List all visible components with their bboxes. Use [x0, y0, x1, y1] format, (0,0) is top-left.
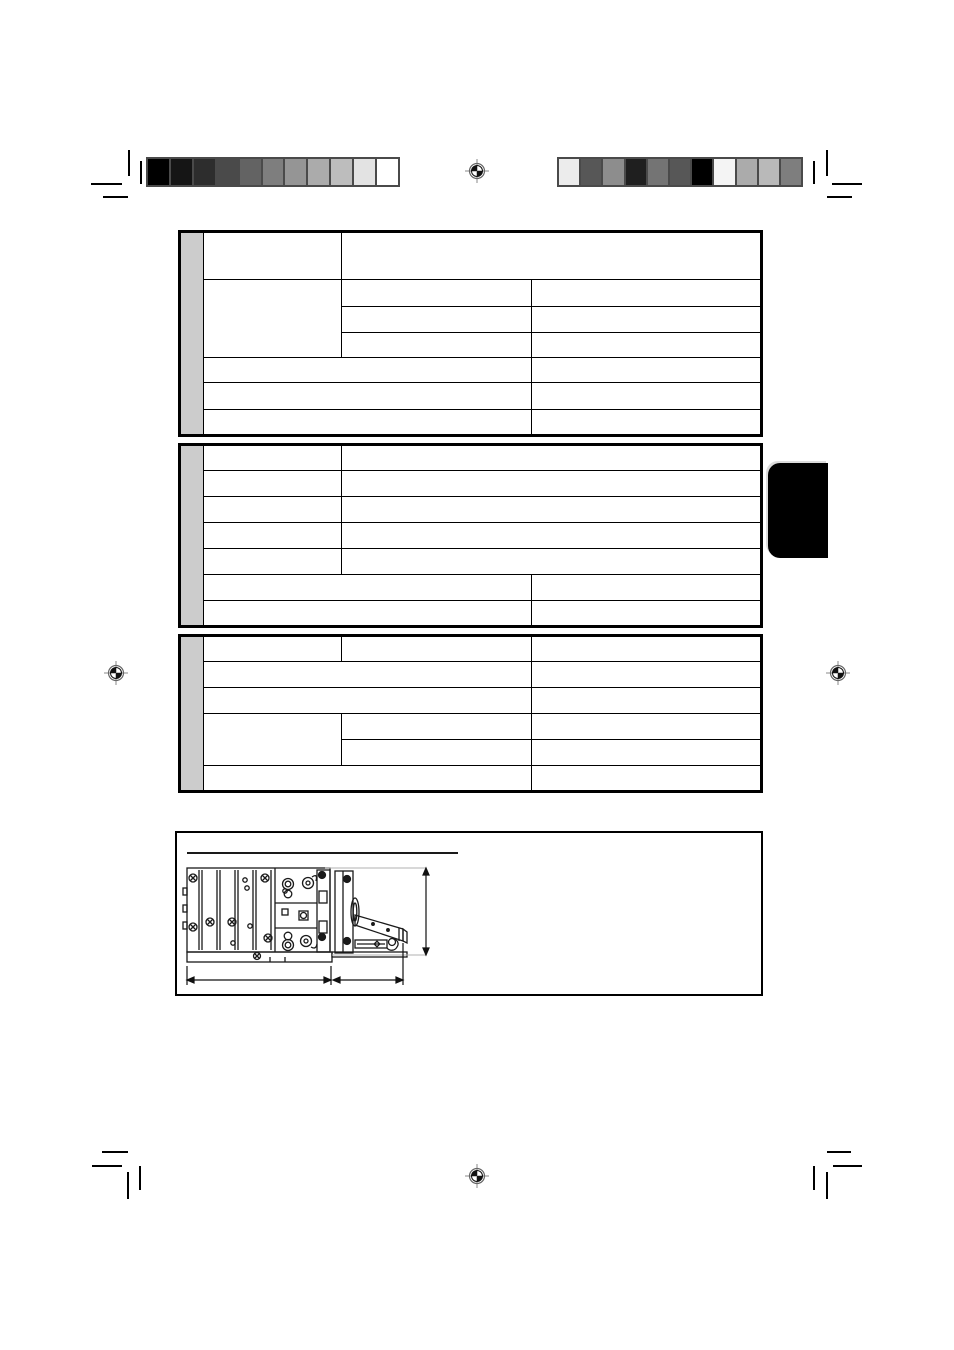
- color-swatch: [240, 159, 261, 185]
- spec-cell: [342, 523, 762, 549]
- color-swatch: [603, 159, 623, 185]
- spec-cell: [204, 766, 532, 792]
- spec-cell: [532, 662, 762, 688]
- color-swatch: [171, 159, 192, 185]
- color-swatch: [559, 159, 579, 185]
- color-swatch: [263, 159, 284, 185]
- color-swatch: [692, 159, 712, 185]
- section-tab: [768, 463, 828, 558]
- registration-mark: [465, 1164, 489, 1188]
- spec-cell: [204, 497, 342, 523]
- spec-table-1: [178, 230, 763, 437]
- crop-mark: [826, 150, 828, 176]
- spec-cell: [204, 471, 342, 497]
- color-swatch: [285, 159, 306, 185]
- color-swatch: [331, 159, 352, 185]
- spec-cell: [204, 688, 532, 714]
- spec-cell: [204, 280, 342, 358]
- registration-mark: [826, 661, 850, 685]
- spec-cell: [204, 636, 342, 662]
- crop-mark: [139, 1166, 141, 1190]
- spec-cell: [204, 523, 342, 549]
- spec-cell: [342, 280, 532, 307]
- crop-mark: [827, 196, 852, 198]
- spec-table-3: [178, 634, 763, 793]
- color-swatch: [737, 159, 757, 185]
- spec-cell: [342, 445, 762, 471]
- spec-cell: [532, 333, 762, 358]
- spec-cell: [342, 549, 762, 575]
- crop-mark: [92, 1165, 122, 1167]
- unit-dimensions-drawing: [177, 833, 761, 994]
- spec-table-2: [178, 443, 763, 628]
- color-swatch: [194, 159, 215, 185]
- spec-cell: [342, 497, 762, 523]
- spec-cell: [342, 471, 762, 497]
- crop-mark: [833, 1165, 862, 1167]
- spec-cell: [342, 307, 532, 333]
- spec-cell: [204, 575, 532, 601]
- crop-mark: [127, 1172, 129, 1199]
- registration-mark: [104, 661, 128, 685]
- spec-cell: [204, 549, 342, 575]
- registration-mark: [465, 159, 489, 183]
- color-swatch: [354, 159, 375, 185]
- crop-mark: [813, 161, 815, 184]
- spec-cell: [532, 307, 762, 333]
- spec-cell: [532, 740, 762, 766]
- grayscale-calibration-bar-left: [146, 157, 400, 187]
- color-swatch: [626, 159, 646, 185]
- spec-cell: [532, 383, 762, 410]
- crop-mark: [128, 150, 130, 176]
- spec-cell: [532, 575, 762, 601]
- spec-cell: [204, 445, 342, 471]
- table-section-sidebar: [180, 636, 204, 792]
- color-swatch: [581, 159, 601, 185]
- spec-cell: [342, 740, 532, 766]
- spec-cell: [532, 358, 762, 383]
- spec-cell: [204, 383, 532, 410]
- color-swatch: [759, 159, 779, 185]
- spec-cell: [532, 636, 762, 662]
- spec-cell: [532, 688, 762, 714]
- spec-cell: [204, 601, 532, 627]
- grayscale-calibration-bar-right: [557, 157, 803, 187]
- crop-mark: [826, 1172, 828, 1199]
- spec-cell: [342, 333, 532, 358]
- crop-mark: [813, 1166, 815, 1190]
- spec-cell: [532, 280, 762, 307]
- spec-cell: [532, 766, 762, 792]
- crop-mark: [140, 161, 142, 184]
- spec-cell: [342, 232, 762, 280]
- spec-cell: [204, 358, 532, 383]
- table-section-sidebar: [180, 232, 204, 436]
- spec-cell: [532, 410, 762, 436]
- spec-cell: [342, 636, 532, 662]
- spec-cell: [204, 714, 342, 766]
- color-swatch: [148, 159, 169, 185]
- page-canvas: [0, 0, 954, 1350]
- color-swatch: [781, 159, 801, 185]
- spec-cell: [342, 714, 532, 740]
- dimensions-box: [175, 831, 763, 996]
- spec-cell: [532, 714, 762, 740]
- crop-mark: [832, 183, 862, 185]
- color-swatch: [308, 159, 329, 185]
- spec-cell: [204, 232, 342, 280]
- spec-cell: [204, 410, 532, 436]
- color-swatch: [648, 159, 668, 185]
- color-swatch: [217, 159, 238, 185]
- crop-mark: [827, 1151, 851, 1153]
- crop-mark: [103, 196, 128, 198]
- crop-mark: [91, 183, 122, 185]
- spec-cell: [532, 601, 762, 627]
- crop-mark: [102, 1151, 128, 1153]
- table-section-sidebar: [180, 445, 204, 627]
- color-swatch: [714, 159, 734, 185]
- spec-cell: [204, 662, 532, 688]
- color-swatch: [377, 159, 398, 185]
- color-swatch: [670, 159, 690, 185]
